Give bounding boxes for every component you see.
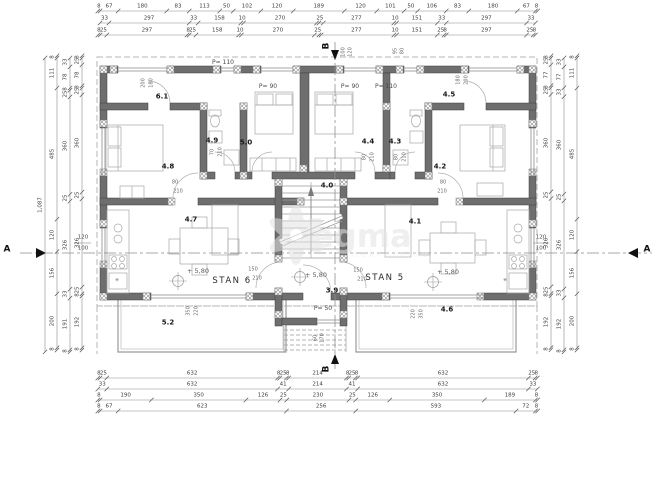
floor-plan-drawing: egmanekretnine — [0, 0, 672, 480]
floor-plan: egmanekretnine 8671808311350102120189120… — [0, 0, 672, 480]
watermark-sub: nekretnine — [352, 250, 430, 260]
watermark: egmanekretnine — [266, 205, 431, 265]
